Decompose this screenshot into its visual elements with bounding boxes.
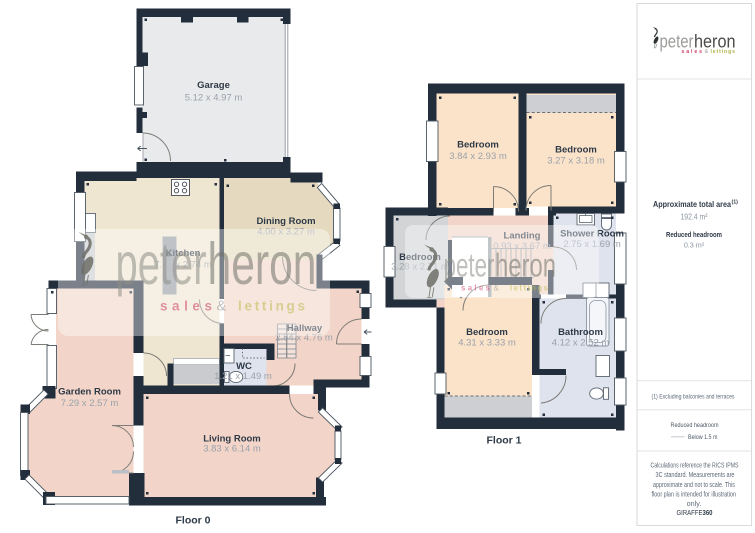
- svg-text:Below 1.5 m: Below 1.5 m: [688, 434, 718, 441]
- svg-text:Floor 1: Floor 1: [486, 435, 521, 447]
- svg-text:Dining Room: Dining Room: [256, 216, 315, 227]
- svg-text:Reduced headroom: Reduced headroom: [666, 230, 722, 239]
- svg-text:7.29 x 2.57 m: 7.29 x 2.57 m: [61, 398, 119, 409]
- svg-text:(1) Excluding balconies and te: (1) Excluding balconies and terraces: [652, 393, 735, 400]
- svg-text:peter: peter: [116, 231, 207, 297]
- svg-text:Reduced headroom: Reduced headroom: [671, 422, 719, 429]
- svg-text:Bathroom: Bathroom: [558, 327, 603, 338]
- svg-text:3.27 x 3.18 m: 3.27 x 3.18 m: [547, 156, 605, 167]
- svg-text:floor plan is intended for ill: floor plan is intended for illustration: [652, 490, 737, 499]
- svg-text:lettings: lettings: [510, 284, 549, 293]
- svg-text:Bedroom: Bedroom: [466, 327, 508, 338]
- svg-text:0.3 m²: 0.3 m²: [684, 241, 705, 250]
- svg-text:Approximate total area: Approximate total area: [653, 199, 731, 209]
- svg-text:3C standard. Measurements are: 3C standard. Measurements are: [656, 470, 735, 479]
- svg-text:3.84 x 2.93 m: 3.84 x 2.93 m: [449, 151, 507, 162]
- svg-text:Bedroom: Bedroom: [555, 145, 597, 156]
- svg-text:approximate and not to scale.: approximate and not to scale. This: [653, 480, 735, 489]
- svg-text:lettings: lettings: [711, 49, 736, 55]
- svg-text:3.83 x 6.14 m: 3.83 x 6.14 m: [203, 444, 261, 455]
- svg-text:1.21 x 1.49 m: 1.21 x 1.49 m: [214, 371, 272, 382]
- svg-text:4.31 x 3.33 m: 4.31 x 3.33 m: [458, 338, 516, 349]
- svg-text:4.12 x 2.52 m: 4.12 x 2.52 m: [552, 338, 610, 349]
- svg-text:peter: peter: [444, 247, 495, 284]
- svg-text:Bedroom: Bedroom: [457, 140, 499, 151]
- svg-text:192.4 m²: 192.4 m²: [681, 211, 708, 221]
- svg-text:heron: heron: [495, 247, 556, 284]
- svg-text:&: &: [494, 284, 500, 293]
- svg-text:5.12 x 4.97 m: 5.12 x 4.97 m: [185, 93, 243, 104]
- svg-text:GIRAFFE360: GIRAFFE360: [677, 508, 713, 517]
- svg-text:Calculations reference the RIC: Calculations reference the RICS IPMS: [651, 460, 739, 469]
- svg-text:Garden Room: Garden Room: [58, 387, 121, 398]
- svg-text:Garage: Garage: [197, 80, 230, 91]
- svg-text:only.: only.: [687, 499, 702, 508]
- svg-text:heron: heron: [208, 231, 317, 297]
- svg-text:&: &: [217, 299, 227, 315]
- svg-text:&: &: [705, 49, 709, 55]
- svg-text:Floor 0: Floor 0: [175, 515, 210, 527]
- svg-text:(1): (1): [732, 200, 739, 206]
